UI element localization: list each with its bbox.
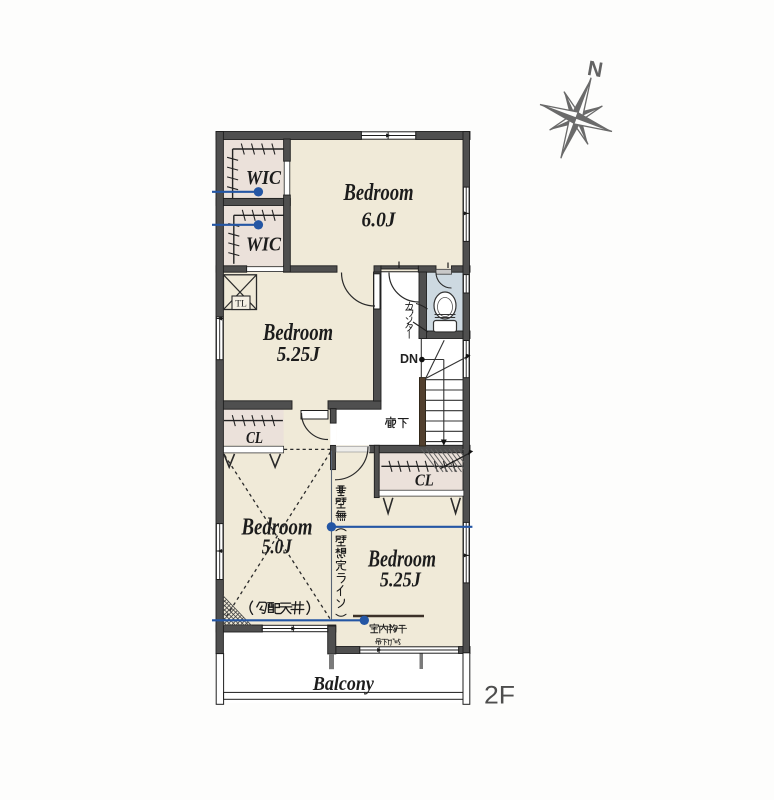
svg-text:Balcony: Balcony: [312, 674, 374, 695]
svg-text:WIC: WIC: [246, 168, 282, 189]
svg-text:5.25J: 5.25J: [277, 342, 321, 366]
svg-text:Bedroom: Bedroom: [343, 179, 414, 206]
svg-text:WIC: WIC: [246, 235, 282, 256]
svg-text:DN: DN: [400, 352, 418, 366]
svg-text:TL: TL: [235, 300, 247, 310]
svg-text:2F: 2F: [484, 682, 515, 710]
svg-text:5.0J: 5.0J: [262, 535, 293, 559]
svg-text:CL: CL: [415, 471, 434, 490]
svg-text:5.25J: 5.25J: [380, 568, 422, 592]
svg-text:CL: CL: [246, 428, 263, 447]
svg-text:6.0J: 6.0J: [362, 208, 397, 232]
